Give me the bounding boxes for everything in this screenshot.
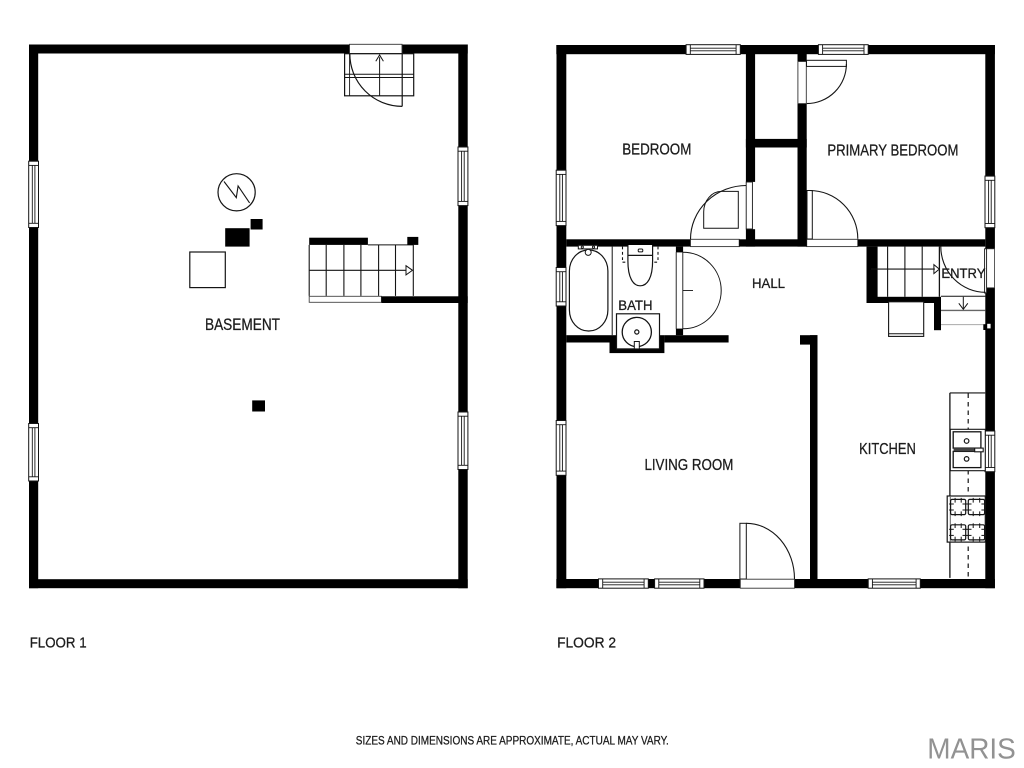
- svg-text:HALL: HALL: [752, 276, 786, 291]
- svg-text:FLOOR 1: FLOOR 1: [30, 635, 87, 652]
- svg-text:BATH: BATH: [618, 298, 652, 313]
- svg-text:KITCHEN: KITCHEN: [859, 441, 916, 458]
- svg-text:BEDROOM: BEDROOM: [622, 141, 691, 158]
- svg-text:MARIS: MARIS: [927, 733, 1016, 765]
- svg-text:PRIMARY BEDROOM: PRIMARY BEDROOM: [827, 142, 958, 159]
- svg-text:BASEMENT: BASEMENT: [205, 315, 280, 334]
- svg-text:SIZES AND DIMENSIONS ARE APPRO: SIZES AND DIMENSIONS ARE APPROXIMATE, AC…: [356, 733, 669, 747]
- svg-text:ENTRY: ENTRY: [941, 265, 986, 281]
- svg-text:FLOOR 2: FLOOR 2: [557, 635, 616, 652]
- svg-text:LIVING ROOM: LIVING ROOM: [644, 457, 733, 474]
